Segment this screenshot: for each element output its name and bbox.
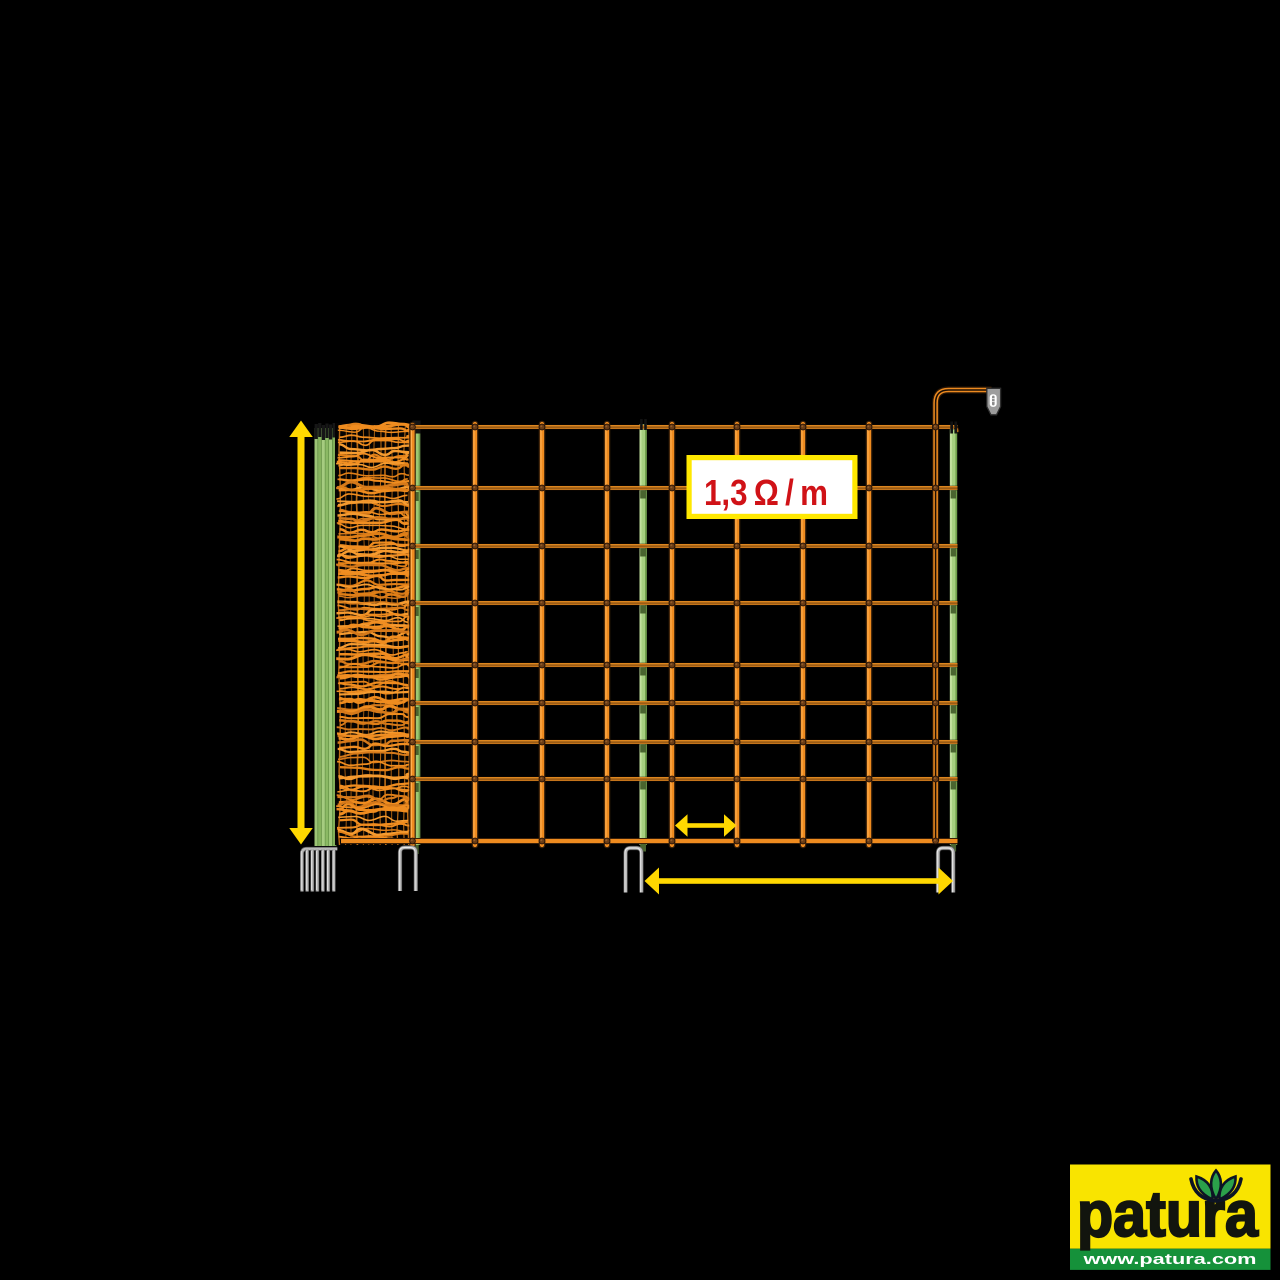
svg-text:1,3 Ω / m: 1,3 Ω / m bbox=[704, 472, 828, 513]
svg-text:www.patura.com: www.patura.com bbox=[1082, 1252, 1256, 1268]
